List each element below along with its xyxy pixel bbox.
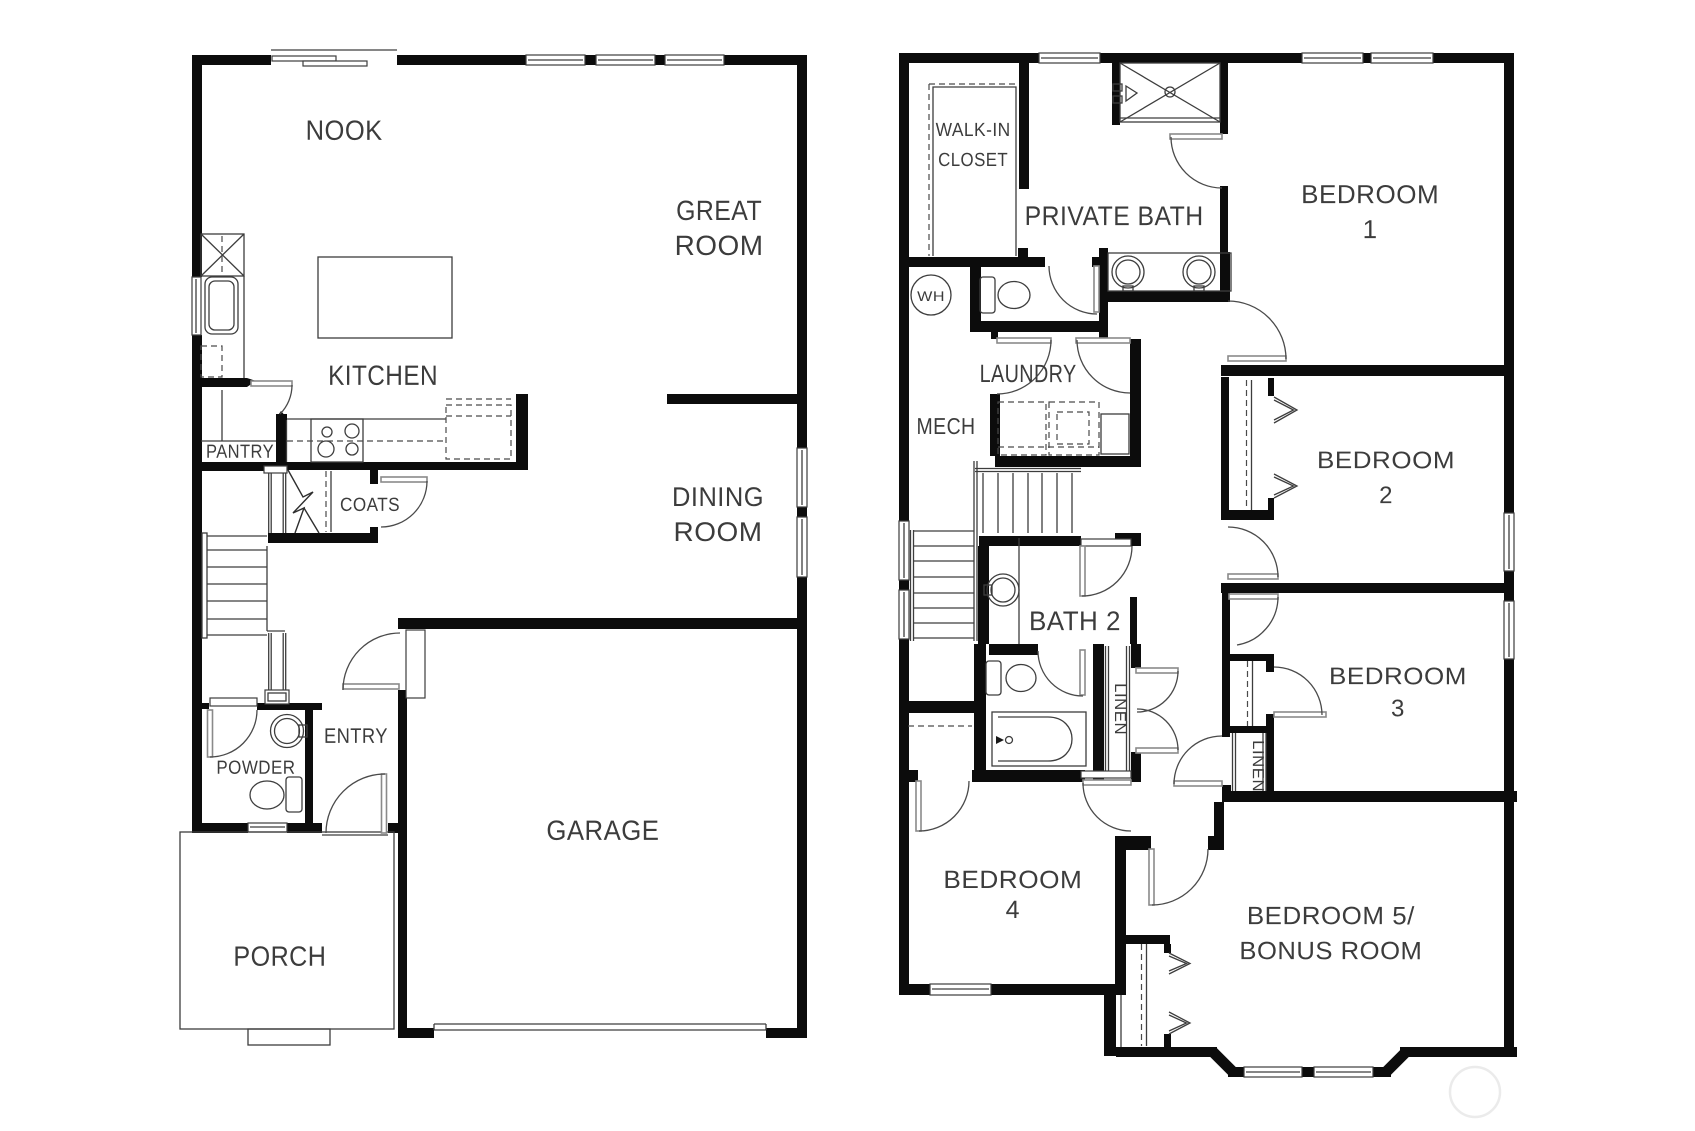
svg-text:BEDROOM: BEDROOM [1329, 663, 1467, 690]
svg-text:LAUNDRY: LAUNDRY [980, 360, 1077, 388]
svg-text:CLOSET: CLOSET [938, 150, 1008, 171]
svg-text:LINEN: LINEN [1111, 683, 1128, 735]
svg-text:LINEN: LINEN [1249, 740, 1266, 792]
svg-text:BEDROOM: BEDROOM [943, 866, 1082, 894]
svg-text:MECH: MECH [917, 413, 976, 439]
svg-text:BATH 2: BATH 2 [1029, 606, 1121, 636]
svg-text:WH: WH [917, 288, 945, 304]
svg-text:PRIVATE BATH: PRIVATE BATH [1025, 201, 1204, 231]
svg-text:ENTRY: ENTRY [324, 725, 388, 748]
svg-text:GREAT: GREAT [676, 195, 762, 226]
svg-text:3: 3 [1391, 695, 1405, 722]
svg-text:DINING: DINING [672, 482, 764, 512]
svg-text:BONUS ROOM: BONUS ROOM [1239, 937, 1422, 965]
svg-text:POWDER: POWDER [216, 758, 295, 779]
svg-text:GARAGE: GARAGE [546, 815, 659, 846]
svg-text:1: 1 [1363, 214, 1378, 244]
svg-text:ROOM: ROOM [675, 230, 764, 261]
svg-text:ROOM: ROOM [674, 517, 763, 547]
svg-text:BEDROOM: BEDROOM [1301, 179, 1439, 209]
svg-text:BEDROOM 5/: BEDROOM 5/ [1247, 902, 1415, 930]
svg-text:2: 2 [1379, 482, 1393, 509]
svg-text:COATS: COATS [340, 495, 400, 516]
svg-text:BEDROOM: BEDROOM [1317, 447, 1455, 474]
svg-text:KITCHEN: KITCHEN [328, 360, 438, 391]
svg-text:NOOK: NOOK [306, 115, 383, 146]
svg-text:4: 4 [1006, 896, 1020, 924]
svg-text:PORCH: PORCH [233, 941, 326, 972]
svg-text:PANTRY: PANTRY [206, 442, 274, 463]
svg-text:WALK-IN: WALK-IN [936, 120, 1011, 141]
